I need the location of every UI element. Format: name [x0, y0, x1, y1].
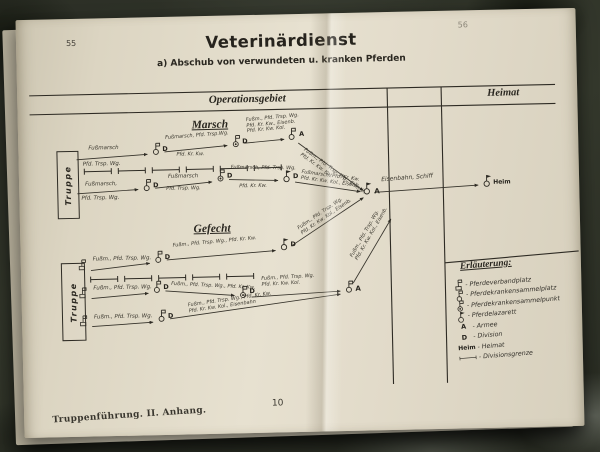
sammelplatz-circle-flag-icon — [144, 179, 151, 190]
section-heading-marsch: Marsch — [170, 118, 250, 132]
sammelplatz-circle-flag-icon — [153, 143, 160, 154]
division-node-letter: D — [293, 172, 299, 180]
division-node-letter: D — [162, 145, 168, 153]
legend-label: Division — [477, 331, 502, 340]
legend-separator: - — [477, 343, 480, 350]
route-label: Pfd. Trsp. Wg. — [83, 161, 121, 168]
route-label: Fußmarsch — [168, 173, 198, 180]
legend-separator: - — [467, 312, 470, 319]
truppe-box-gefecht: Truppe — [61, 263, 87, 342]
truppe-label: Truppe — [63, 165, 73, 205]
route-label: Pfd. Trsp. Wg. — [166, 186, 201, 192]
division-node-letter: D — [227, 171, 233, 179]
sammelpunkt-dot-circle-icon — [233, 135, 240, 146]
division-node-letter: D — [290, 240, 296, 248]
legend-separator: - — [467, 302, 470, 309]
route-label: Pfd. Kr. Kw. — [239, 184, 267, 190]
division-node-letter: D — [163, 283, 169, 291]
legend-box: Erläuterung: - Pferdeverbandplatz - Pfer… — [447, 240, 593, 386]
division-node-letter: D — [165, 253, 171, 261]
route-label: Fußmarsch, Pfd. Trsp. Wg. — [231, 165, 296, 171]
right-page-number: 56 — [458, 20, 468, 29]
photo-camouflage-background: 55 56 Veterinärdienst a) Abschub von ver… — [0, 0, 600, 452]
column-divider-1 — [387, 88, 393, 384]
division-node-letter: D — [153, 181, 159, 189]
sammelplatz-circle-flag-icon — [154, 281, 161, 292]
sammelplatz-circle-flag-icon — [156, 251, 163, 262]
route-label: Pfd. Kr. Kw. — [176, 152, 204, 158]
divisionsgrenze-tick-line-icon — [459, 354, 477, 362]
sammelplatz-circle-flag-icon — [159, 310, 166, 321]
legend-label: Pferdelazarett — [472, 309, 517, 319]
route-label: Fußm., Pfd. Trsp. Wg. — [93, 284, 152, 291]
legend-label: Heimat — [481, 341, 504, 350]
division-node-letter: D — [242, 137, 248, 145]
legend-label: Armee — [476, 321, 497, 330]
legend-key: D — [457, 333, 472, 342]
armee-node-letter: A — [374, 187, 380, 195]
legend-separator: - — [473, 333, 476, 340]
legend-title: Erläuterung: — [460, 258, 512, 272]
legend-separator: - — [465, 281, 468, 288]
route-label: Pfd. Trsp. Wg. — [81, 195, 119, 202]
sammelplatz-circle-flag-icon — [346, 281, 353, 292]
legend-separator: - — [479, 353, 482, 360]
column-divider-2 — [441, 87, 447, 383]
route-label: Fußmarsch, — [85, 181, 117, 188]
section-heading-gefecht: Gefecht — [170, 222, 254, 236]
armee-node-letter: A — [299, 130, 304, 138]
legend-separator: - — [466, 291, 469, 298]
route-label: Fußm., Pfd. Trsp. Wg. — [94, 313, 153, 320]
truppe-box-marsch: Truppe — [56, 151, 79, 219]
legend-label: Divisionsgrenze — [483, 349, 533, 360]
sammelpunkt-dot-circle-icon — [218, 170, 225, 181]
legend-separator: - — [472, 322, 475, 329]
heim-node-label: Heim — [493, 178, 511, 185]
route-label: Fußmarsch — [88, 145, 118, 152]
lazarett-pennant-circle-icon — [484, 175, 491, 187]
truppe-label: Truppe — [69, 282, 79, 322]
lazarett-pennant-circle-icon — [284, 170, 291, 182]
book-page: 55 56 Veterinärdienst a) Abschub von ver… — [16, 8, 585, 438]
legend-key: Heim — [458, 343, 476, 351]
legend-key: A — [456, 322, 471, 331]
route-label: Fußm., Pfd. Trsp. Wg. — [93, 255, 152, 262]
left-page-number: 55 — [66, 39, 76, 48]
division-node-letter: D — [168, 312, 174, 320]
lazarett-pennant-circle-icon — [281, 238, 288, 250]
footer-page-number: 10 — [272, 398, 284, 408]
armee-node-letter: A — [355, 285, 361, 293]
